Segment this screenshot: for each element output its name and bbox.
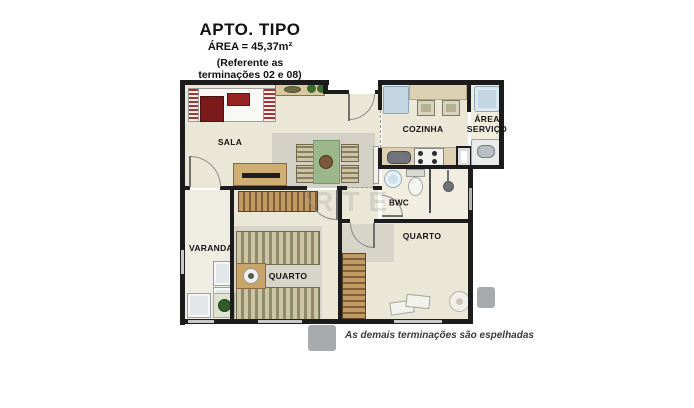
- dining-chair: [341, 144, 359, 162]
- door-leaf: [189, 156, 191, 187]
- room-label-bwc: BWC: [389, 199, 409, 208]
- wall-segment: [180, 80, 185, 325]
- plan-title: APTO. TIPO: [130, 20, 370, 40]
- bar-counter: [409, 84, 467, 100]
- sofa-cushion-large: [200, 96, 224, 122]
- floor-plan-image: APTO. TIPO ÁREA = 45,37m² (Referente as …: [0, 0, 694, 408]
- wall-segment: [378, 165, 504, 169]
- tv: [242, 173, 280, 178]
- lamp-center: [248, 273, 254, 279]
- plant-icon: [307, 84, 316, 93]
- plan-note-line2: terminações 02 e 08): [130, 69, 370, 81]
- wall-segment: [378, 148, 382, 165]
- window: [394, 320, 442, 323]
- dining-chair: [296, 144, 314, 162]
- bar-stool: [417, 100, 435, 116]
- shower-head: [443, 181, 454, 192]
- washer-lid: [477, 145, 495, 158]
- pillow: [405, 294, 430, 309]
- door-leaf: [373, 223, 375, 248]
- bar-stool: [442, 100, 460, 116]
- single-bed: [236, 231, 320, 265]
- door-leaf: [336, 190, 338, 220]
- room-label-quarto1: QUARTO: [269, 271, 307, 281]
- pillar-tab-right: [477, 287, 495, 308]
- wall-segment: [340, 219, 350, 223]
- window: [188, 320, 214, 323]
- open-passage: [347, 187, 373, 188]
- kitchen-sink: [387, 151, 411, 164]
- wall-segment: [230, 188, 234, 321]
- wall-segment: [467, 84, 471, 112]
- pillar-tab-bottom: [308, 325, 336, 351]
- wall-segment: [338, 188, 342, 321]
- balcony-chair: [187, 293, 211, 318]
- stove-burner: [418, 151, 423, 156]
- table-centerpiece: [319, 155, 333, 169]
- wall-segment: [374, 219, 472, 223]
- room-label-cozinha: COZINHA: [403, 124, 444, 134]
- dining-chair: [296, 165, 314, 183]
- sofa-cushion-small: [227, 93, 250, 106]
- laundry-tank: [474, 86, 500, 112]
- door-leaf: [348, 94, 350, 121]
- window: [181, 250, 184, 274]
- decor-bowl: [284, 86, 301, 93]
- room-label-quarto2: QUARTO: [403, 231, 441, 241]
- wall-segment: [378, 80, 504, 85]
- toilet-bowl: [408, 177, 423, 196]
- wall-segment: [373, 186, 382, 190]
- room-label-varanda: VARANDA: [189, 243, 233, 253]
- window: [258, 320, 302, 323]
- shower-divider-wall: [429, 169, 431, 213]
- room-label-sala: SALA: [218, 137, 242, 147]
- footnote-text: As demais terminações são espelhadas: [345, 330, 534, 341]
- open-passage: [380, 110, 381, 148]
- stove-burner: [418, 159, 423, 164]
- single-bed: [236, 287, 320, 320]
- door-leaf: [382, 215, 403, 217]
- wall-segment: [323, 90, 349, 94]
- stove-burner: [432, 151, 437, 156]
- room-label-area-servico: ÁREA SERVIÇO: [461, 115, 513, 135]
- title-block: APTO. TIPO ÁREA = 45,37m² (Referente as …: [130, 20, 370, 81]
- sofa-armrest-left: [188, 88, 199, 122]
- dining-chair: [341, 165, 359, 183]
- ottoman-center: [456, 298, 463, 305]
- wall-segment: [378, 85, 382, 110]
- wardrobe: [238, 191, 318, 212]
- stove-burner: [432, 159, 437, 164]
- plan-area: ÁREA = 45,37m²: [130, 41, 370, 53]
- plan-note-line1: (Referente as: [130, 57, 370, 69]
- window: [469, 188, 472, 210]
- toilet-tank: [406, 169, 425, 177]
- wardrobe: [342, 253, 366, 319]
- bathroom-sink: [384, 170, 402, 188]
- fridge: [383, 86, 409, 114]
